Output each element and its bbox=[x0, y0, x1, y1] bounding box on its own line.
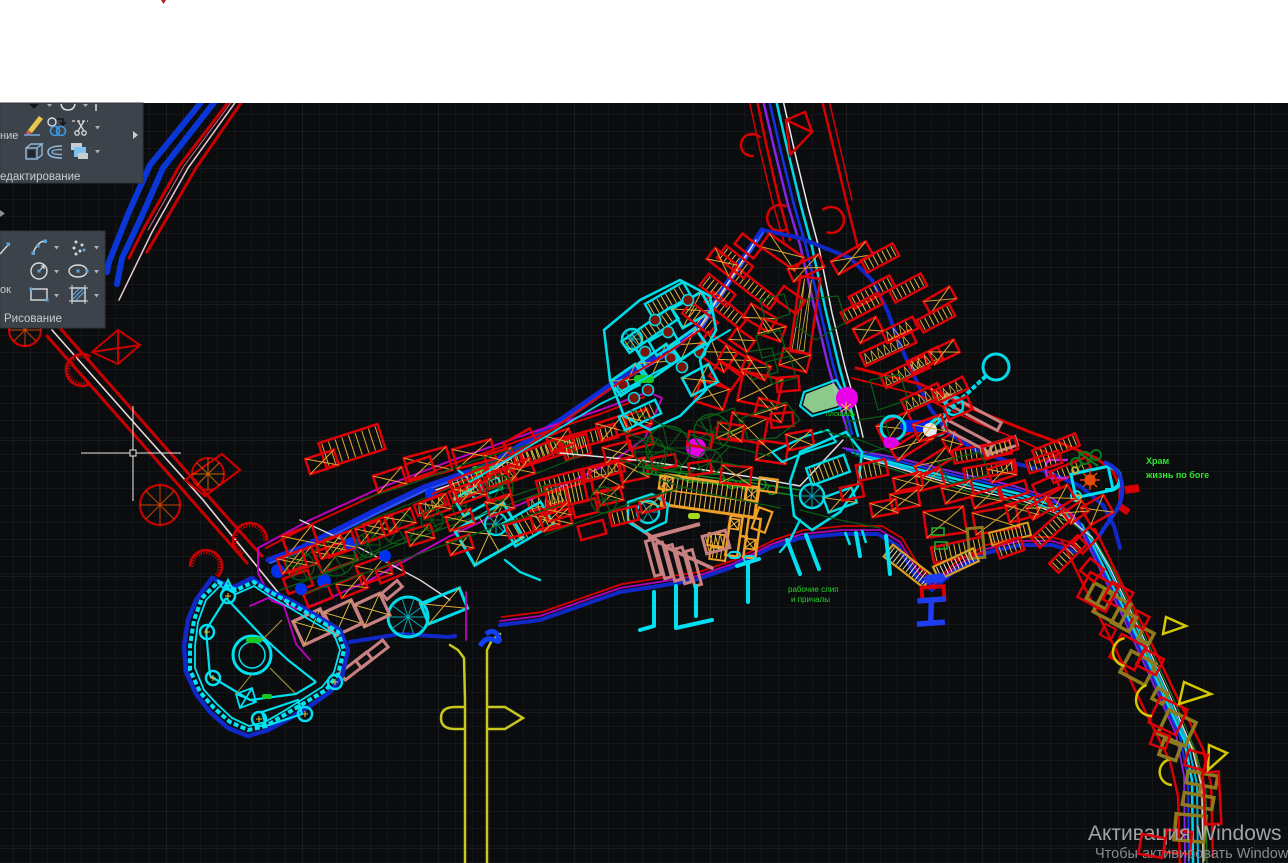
svg-text:едактирование: едактирование bbox=[0, 171, 80, 183]
svg-text:и причалы: и причалы bbox=[791, 595, 830, 604]
svg-text:рабочие слип: рабочие слип bbox=[788, 585, 839, 594]
svg-text:Храм: Храм bbox=[1146, 456, 1170, 466]
svg-text:площадь: площадь bbox=[826, 411, 856, 418]
svg-text:Активация Windows: Активация Windows bbox=[1088, 822, 1282, 845]
svg-text:ок: ок bbox=[0, 284, 11, 296]
svg-text:ние: ние bbox=[0, 130, 18, 142]
svg-text:Рисование: Рисование bbox=[4, 313, 62, 325]
svg-text:Чтобы активировать Windows, пе: Чтобы активировать Windows, перейдите в … bbox=[1095, 846, 1288, 862]
svg-text:жизнь по боге: жизнь по боге bbox=[1145, 470, 1209, 480]
